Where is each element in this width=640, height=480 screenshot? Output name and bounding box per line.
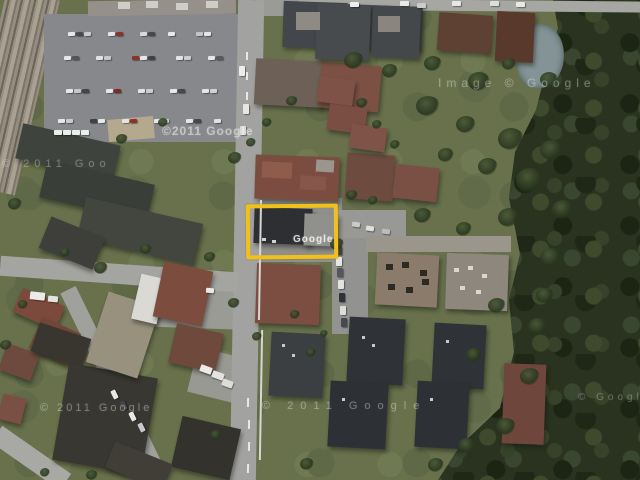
building [349, 124, 388, 153]
tree-canopy [528, 318, 548, 335]
vehicle [148, 32, 155, 36]
vehicle [66, 89, 73, 93]
vehicle [76, 32, 83, 36]
vehicle [108, 32, 115, 36]
building [437, 12, 494, 54]
tree-canopy [210, 430, 222, 440]
vehicle [340, 306, 346, 315]
tree-canopy [390, 140, 400, 149]
roof-mark [118, 2, 130, 9]
vehicle [168, 32, 175, 36]
roof-mark [388, 284, 395, 290]
roof-mark [482, 274, 487, 278]
building [255, 263, 321, 325]
vehicle [58, 119, 65, 123]
tree-canopy [204, 252, 216, 262]
roof-mark [430, 398, 433, 401]
building [316, 76, 355, 107]
vehicle [74, 89, 81, 93]
roof-mark [422, 279, 429, 285]
tree-canopy [372, 120, 382, 129]
vehicle [140, 56, 147, 60]
vehicle [490, 1, 499, 6]
tree-canopy [502, 58, 516, 70]
roof-mark [454, 268, 459, 272]
building [168, 323, 224, 373]
building [315, 3, 371, 61]
roof-mark [476, 290, 481, 294]
tree-canopy [540, 248, 562, 267]
vehicle [68, 32, 75, 36]
roof-mark [468, 266, 473, 270]
vehicle [194, 119, 201, 123]
tree-canopy [94, 262, 108, 274]
tree-canopy [40, 468, 50, 477]
roof-mark [262, 161, 293, 179]
roof-mark [316, 160, 335, 173]
vehicle [243, 104, 249, 114]
tree-canopy [516, 168, 544, 192]
roof-mark [146, 1, 158, 8]
vehicle [196, 32, 203, 36]
watermark-text: Image © Google [438, 76, 596, 90]
roof-mark [259, 330, 263, 460]
vehicle [452, 1, 461, 6]
vehicle [178, 89, 185, 93]
tree-canopy [498, 208, 520, 227]
watermark-text: © 2011 Google [40, 402, 152, 414]
roof-mark [296, 12, 320, 30]
tree-canopy [416, 96, 440, 116]
tree-canopy [0, 340, 12, 350]
watermark-text: © Google [578, 392, 640, 403]
tree-canopy [456, 116, 476, 133]
tree-canopy [306, 348, 316, 357]
vehicle [81, 130, 89, 135]
tree-canopy [498, 128, 524, 150]
watermark-text: © 2011 Google [262, 400, 426, 412]
roof-mark [247, 464, 249, 473]
tree-canopy [246, 138, 256, 147]
vehicle [148, 56, 155, 60]
tree-canopy [140, 244, 152, 254]
roof-mark [372, 344, 375, 347]
tree-canopy [540, 140, 564, 160]
roof-mark [246, 52, 248, 60]
tree-canopy [344, 52, 364, 69]
roof-mark [300, 175, 327, 190]
tree-canopy [300, 458, 314, 470]
vehicle [350, 2, 359, 7]
building [0, 393, 27, 424]
vehicle [400, 1, 409, 6]
roof-mark [282, 344, 285, 347]
tree-canopy [86, 470, 98, 480]
tree-canopy [438, 148, 454, 162]
tree-canopy [18, 300, 28, 309]
tree-canopy [520, 368, 540, 385]
vehicle [206, 288, 214, 294]
ground-pad [366, 236, 511, 252]
vehicle [176, 56, 183, 60]
building [327, 381, 388, 450]
tree-canopy [536, 288, 554, 303]
vehicle [366, 225, 375, 231]
roof-mark [362, 336, 365, 339]
vehicle [210, 89, 217, 93]
vehicle [122, 119, 129, 123]
building [495, 11, 536, 63]
watermark-text: © 2011 Goo [2, 158, 111, 170]
tree-canopy [458, 438, 476, 453]
tree-canopy [414, 208, 432, 223]
tree-canopy [116, 134, 128, 144]
vehicle [202, 89, 209, 93]
roof-mark [378, 16, 400, 32]
vehicle [352, 221, 361, 227]
vehicle [114, 89, 121, 93]
roof-mark [446, 340, 449, 343]
tree-canopy [290, 310, 300, 319]
tree-canopy [456, 222, 472, 236]
vehicle [30, 291, 46, 301]
vehicle [130, 119, 137, 123]
vehicle [216, 56, 223, 60]
tree-canopy [8, 198, 22, 210]
tree-canopy [496, 418, 516, 435]
vehicle [66, 119, 73, 123]
tree-canopy [228, 152, 242, 164]
roof-mark [386, 264, 393, 270]
roof-mark [246, 92, 248, 100]
building [392, 164, 439, 202]
roof-mark [246, 72, 248, 80]
tree-canopy [424, 56, 442, 71]
vehicle [116, 32, 123, 36]
roof-mark [248, 442, 250, 451]
roof-mark [248, 420, 250, 429]
vehicle [208, 56, 215, 60]
vehicle [132, 56, 139, 60]
vehicle [339, 293, 345, 302]
roof-mark [206, 1, 218, 8]
roof-mark [406, 287, 413, 293]
vehicle [140, 32, 147, 36]
tree-canopy [346, 190, 358, 200]
vehicle [96, 56, 103, 60]
satellite-view[interactable]: © 2011 Google©2011 GoogleImage © Google©… [0, 0, 640, 480]
vehicle [64, 56, 71, 60]
tree-canopy [368, 196, 378, 205]
vehicle [106, 89, 113, 93]
tree-canopy [228, 298, 240, 308]
roof-mark [420, 270, 427, 276]
vehicle [72, 56, 79, 60]
vehicle [338, 280, 344, 289]
tree-canopy [382, 64, 398, 78]
tree-canopy [478, 158, 498, 175]
tree-canopy [466, 348, 482, 362]
vehicle [417, 3, 426, 8]
tree-canopy [428, 458, 444, 472]
vehicle [63, 130, 71, 135]
roof-mark [292, 354, 295, 357]
vehicle [54, 130, 62, 135]
building [346, 317, 405, 386]
building [375, 252, 440, 307]
vehicle [341, 318, 347, 327]
roof-mark [402, 262, 409, 268]
vehicle [146, 89, 153, 93]
tree-canopy [60, 248, 70, 257]
vehicle [516, 2, 525, 7]
tree-canopy [488, 298, 506, 313]
tree-canopy [356, 98, 368, 108]
vehicle [98, 119, 105, 123]
tree-canopy [286, 96, 298, 106]
roof-mark [176, 3, 188, 10]
vehicle [84, 32, 91, 36]
vehicle [214, 119, 221, 123]
vehicle [337, 268, 343, 277]
vehicle [138, 89, 145, 93]
roof-mark [460, 286, 465, 290]
vehicle [184, 56, 191, 60]
tree-canopy [252, 332, 262, 341]
tree-canopy [552, 200, 574, 219]
vehicle [170, 89, 177, 93]
vehicle [204, 32, 211, 36]
tree-canopy [262, 118, 272, 127]
vehicle [48, 295, 59, 302]
vehicle [72, 130, 80, 135]
highlight-box [246, 204, 338, 260]
roof-mark [247, 398, 249, 407]
building [371, 5, 421, 59]
tree-canopy [320, 330, 328, 337]
vehicle [82, 89, 89, 93]
vehicle [382, 228, 391, 234]
vehicle [90, 119, 97, 123]
building [268, 332, 325, 399]
watermark-text: ©2011 Google [162, 124, 254, 138]
vehicle [104, 56, 111, 60]
vehicle [186, 119, 193, 123]
vehicle [239, 66, 245, 76]
